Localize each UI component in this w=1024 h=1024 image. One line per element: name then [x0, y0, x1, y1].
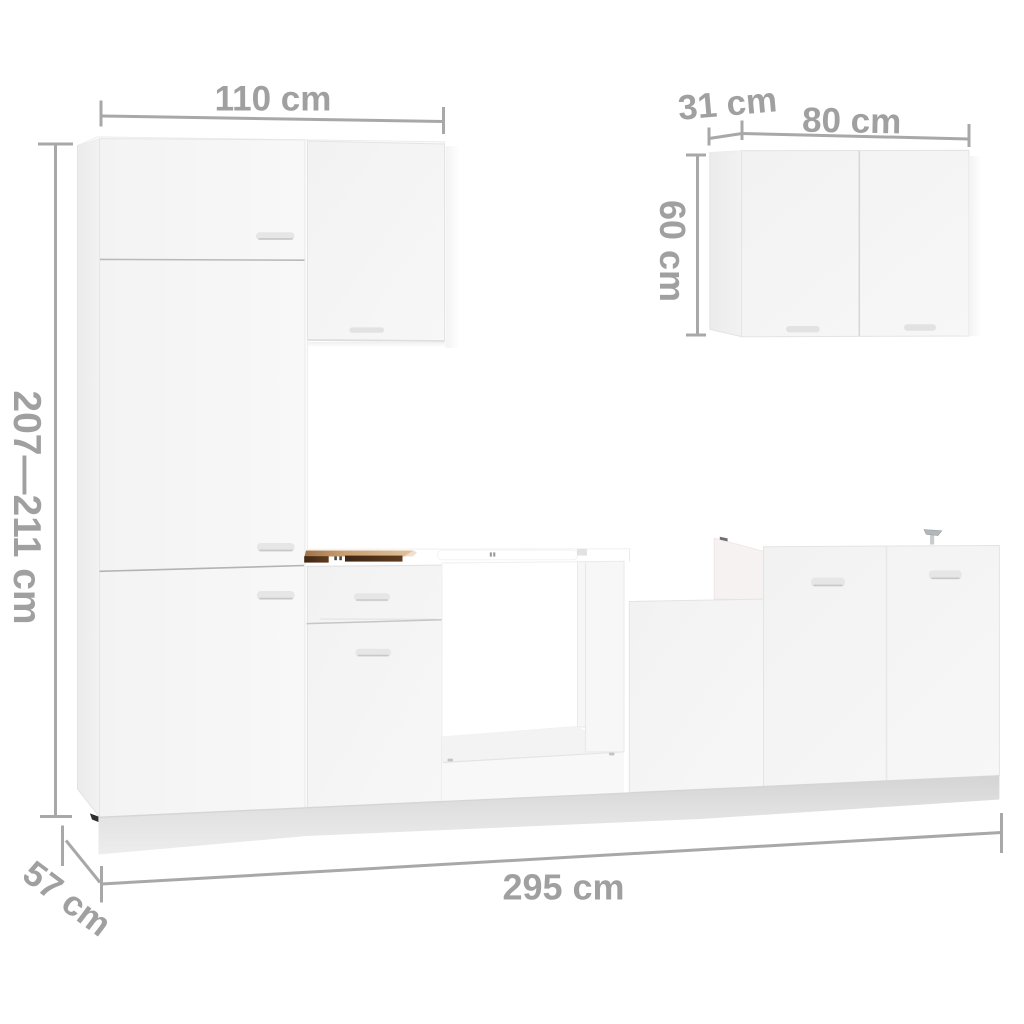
- svg-text:80 cm: 80 cm: [802, 101, 902, 142]
- svg-text:60 cm: 60 cm: [652, 200, 693, 302]
- svg-text:207—211 cm: 207—211 cm: [5, 390, 48, 624]
- svg-text:110 cm: 110 cm: [215, 80, 332, 119]
- svg-text:295 cm: 295 cm: [502, 867, 624, 908]
